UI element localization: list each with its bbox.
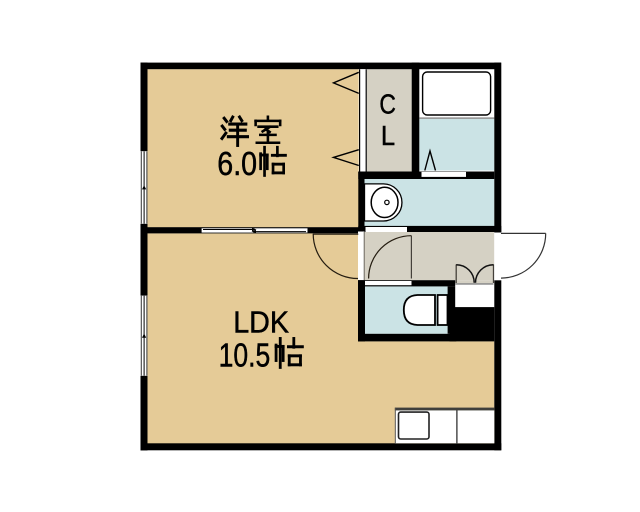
svg-text:L: L [381, 120, 395, 151]
svg-text:C: C [379, 89, 396, 120]
svg-text:6.0: 6.0 [217, 145, 257, 182]
svg-text:LDK: LDK [233, 305, 289, 340]
svg-text:10.5: 10.5 [219, 336, 271, 373]
